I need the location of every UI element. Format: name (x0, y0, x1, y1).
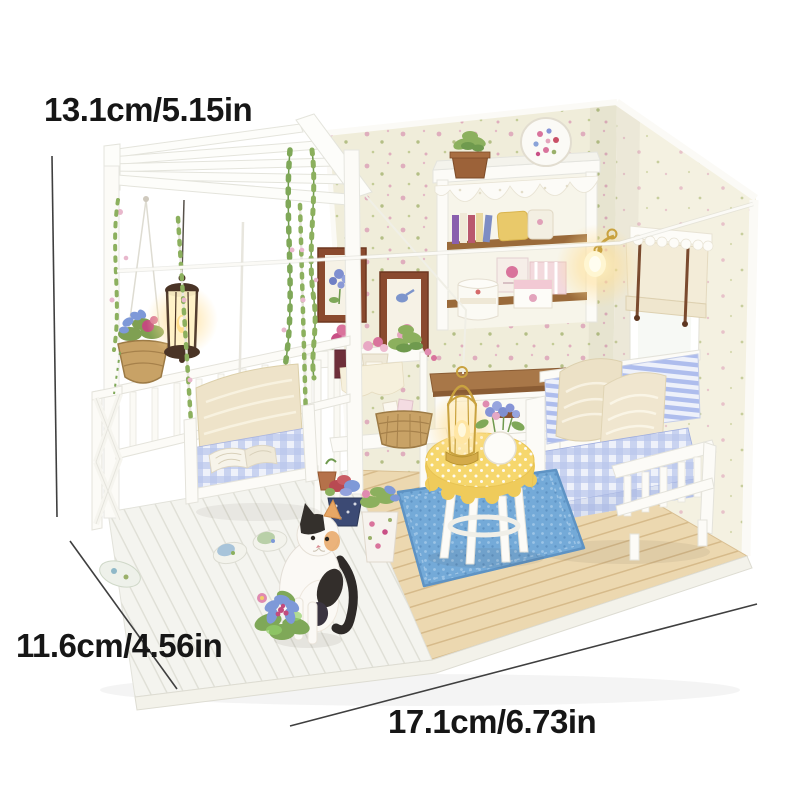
width-dimension-label: 17.1cm/6.73in (388, 704, 596, 740)
shelf-books (452, 213, 492, 244)
height-dimension-line (52, 156, 57, 517)
depth-dimension-label: 11.6cm/4.56in (16, 628, 222, 664)
product-photo-stage: 13.1cm/5.15in 11.6cm/4.56in 17.1cm/6.73i… (0, 0, 800, 800)
wall-lamp (556, 224, 640, 308)
height-dimension-label: 13.1cm/5.15in (44, 92, 252, 128)
